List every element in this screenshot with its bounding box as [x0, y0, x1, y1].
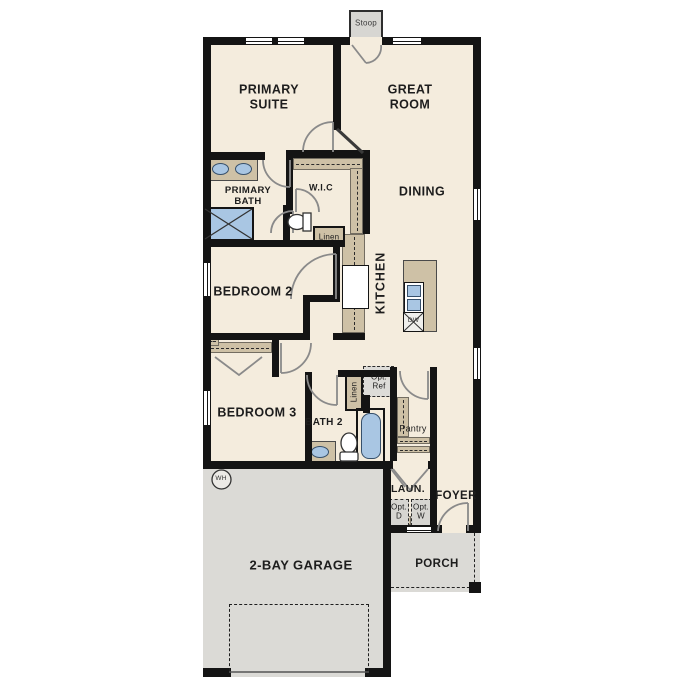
opt-dryer-label: Opt. D: [389, 503, 409, 522]
bathtub: [361, 413, 381, 459]
wall-wic-right: [363, 158, 370, 234]
stoop-door-opening: [350, 37, 382, 45]
wall-laundry-left: [383, 461, 391, 533]
range: [342, 265, 369, 309]
garage-door-area: [229, 604, 369, 671]
wall-suite-bottom: [203, 152, 265, 160]
wall-optref-stub: [363, 395, 370, 413]
window-suite-2: [277, 37, 305, 45]
bedroom3-label: BEDROOM 3: [217, 406, 296, 421]
window-bedroom2: [203, 262, 211, 297]
wic-label: W.I.C: [309, 183, 333, 194]
opt-ref-label: Opt. Ref: [365, 373, 393, 392]
porch-label: PORCH: [415, 558, 459, 572]
island-sink-bowl-2: [407, 299, 421, 311]
wall-exterior-right: [473, 37, 481, 533]
window-dining: [473, 188, 481, 221]
wall-garage-bottom-left: [203, 668, 231, 677]
window-foyer: [473, 347, 481, 380]
vanity-sink-2: [235, 163, 252, 175]
wall-suite-greatroom: [333, 45, 341, 130]
wall-foyer-bottom-b: [466, 525, 481, 533]
primary-bath-label: PRIMARY BATH: [213, 185, 283, 207]
vanity-sink-1: [212, 163, 229, 175]
primary-suite-label: PRIMARY SUITE: [223, 82, 315, 112]
wall-laundry-top-stub: [428, 461, 437, 469]
dining-label: DINING: [399, 185, 445, 200]
pantry-shelf-1: [397, 437, 430, 444]
dishwasher-label: DW: [408, 317, 419, 325]
opt-washer-label: Opt. W: [410, 503, 432, 522]
wall-wic-top: [286, 150, 370, 158]
stoop-label: Stoop: [355, 18, 377, 27]
garage-label: 2-BAY GARAGE: [246, 557, 356, 572]
foyer-label: FOYER: [435, 490, 477, 504]
laundry-label: LAUN.: [391, 483, 425, 495]
wall-garage-right: [383, 533, 391, 677]
bedroom2-label: BEDROOM 2: [213, 285, 292, 300]
window-bedroom3: [203, 390, 211, 426]
window-greatroom: [392, 37, 422, 45]
wall-bedroom2-right: [333, 247, 340, 300]
pantry-label: Pantry: [399, 424, 426, 435]
linen-bath-label: Linen: [349, 382, 358, 403]
wall-main-bottom: [203, 461, 393, 469]
linen-kitchen-label: Linen: [319, 232, 340, 241]
window-suite-1: [245, 37, 273, 45]
wall-bedroom2-bottom: [203, 333, 310, 340]
bath2-sink: [311, 446, 329, 458]
porch-column: [469, 582, 481, 593]
wic-shelf-right: [350, 168, 363, 234]
water-heater-label: WH: [215, 475, 226, 483]
kitchen-label: KITCHEN: [374, 252, 389, 315]
pantry-shelf-2: [397, 446, 430, 453]
floor-plan: Stoop PRIMARY SUITE GREAT ROOM PRIMARY B…: [0, 0, 687, 687]
bath2-label: BATH 2: [304, 417, 344, 429]
window-laundry: [406, 526, 432, 533]
wall-kitchen-bottom: [333, 333, 365, 340]
island-sink-bowl-1: [407, 285, 421, 297]
wall-hall-stub: [303, 295, 340, 302]
wall-closet-right: [272, 340, 279, 377]
great-room-label: GREAT ROOM: [370, 82, 450, 112]
